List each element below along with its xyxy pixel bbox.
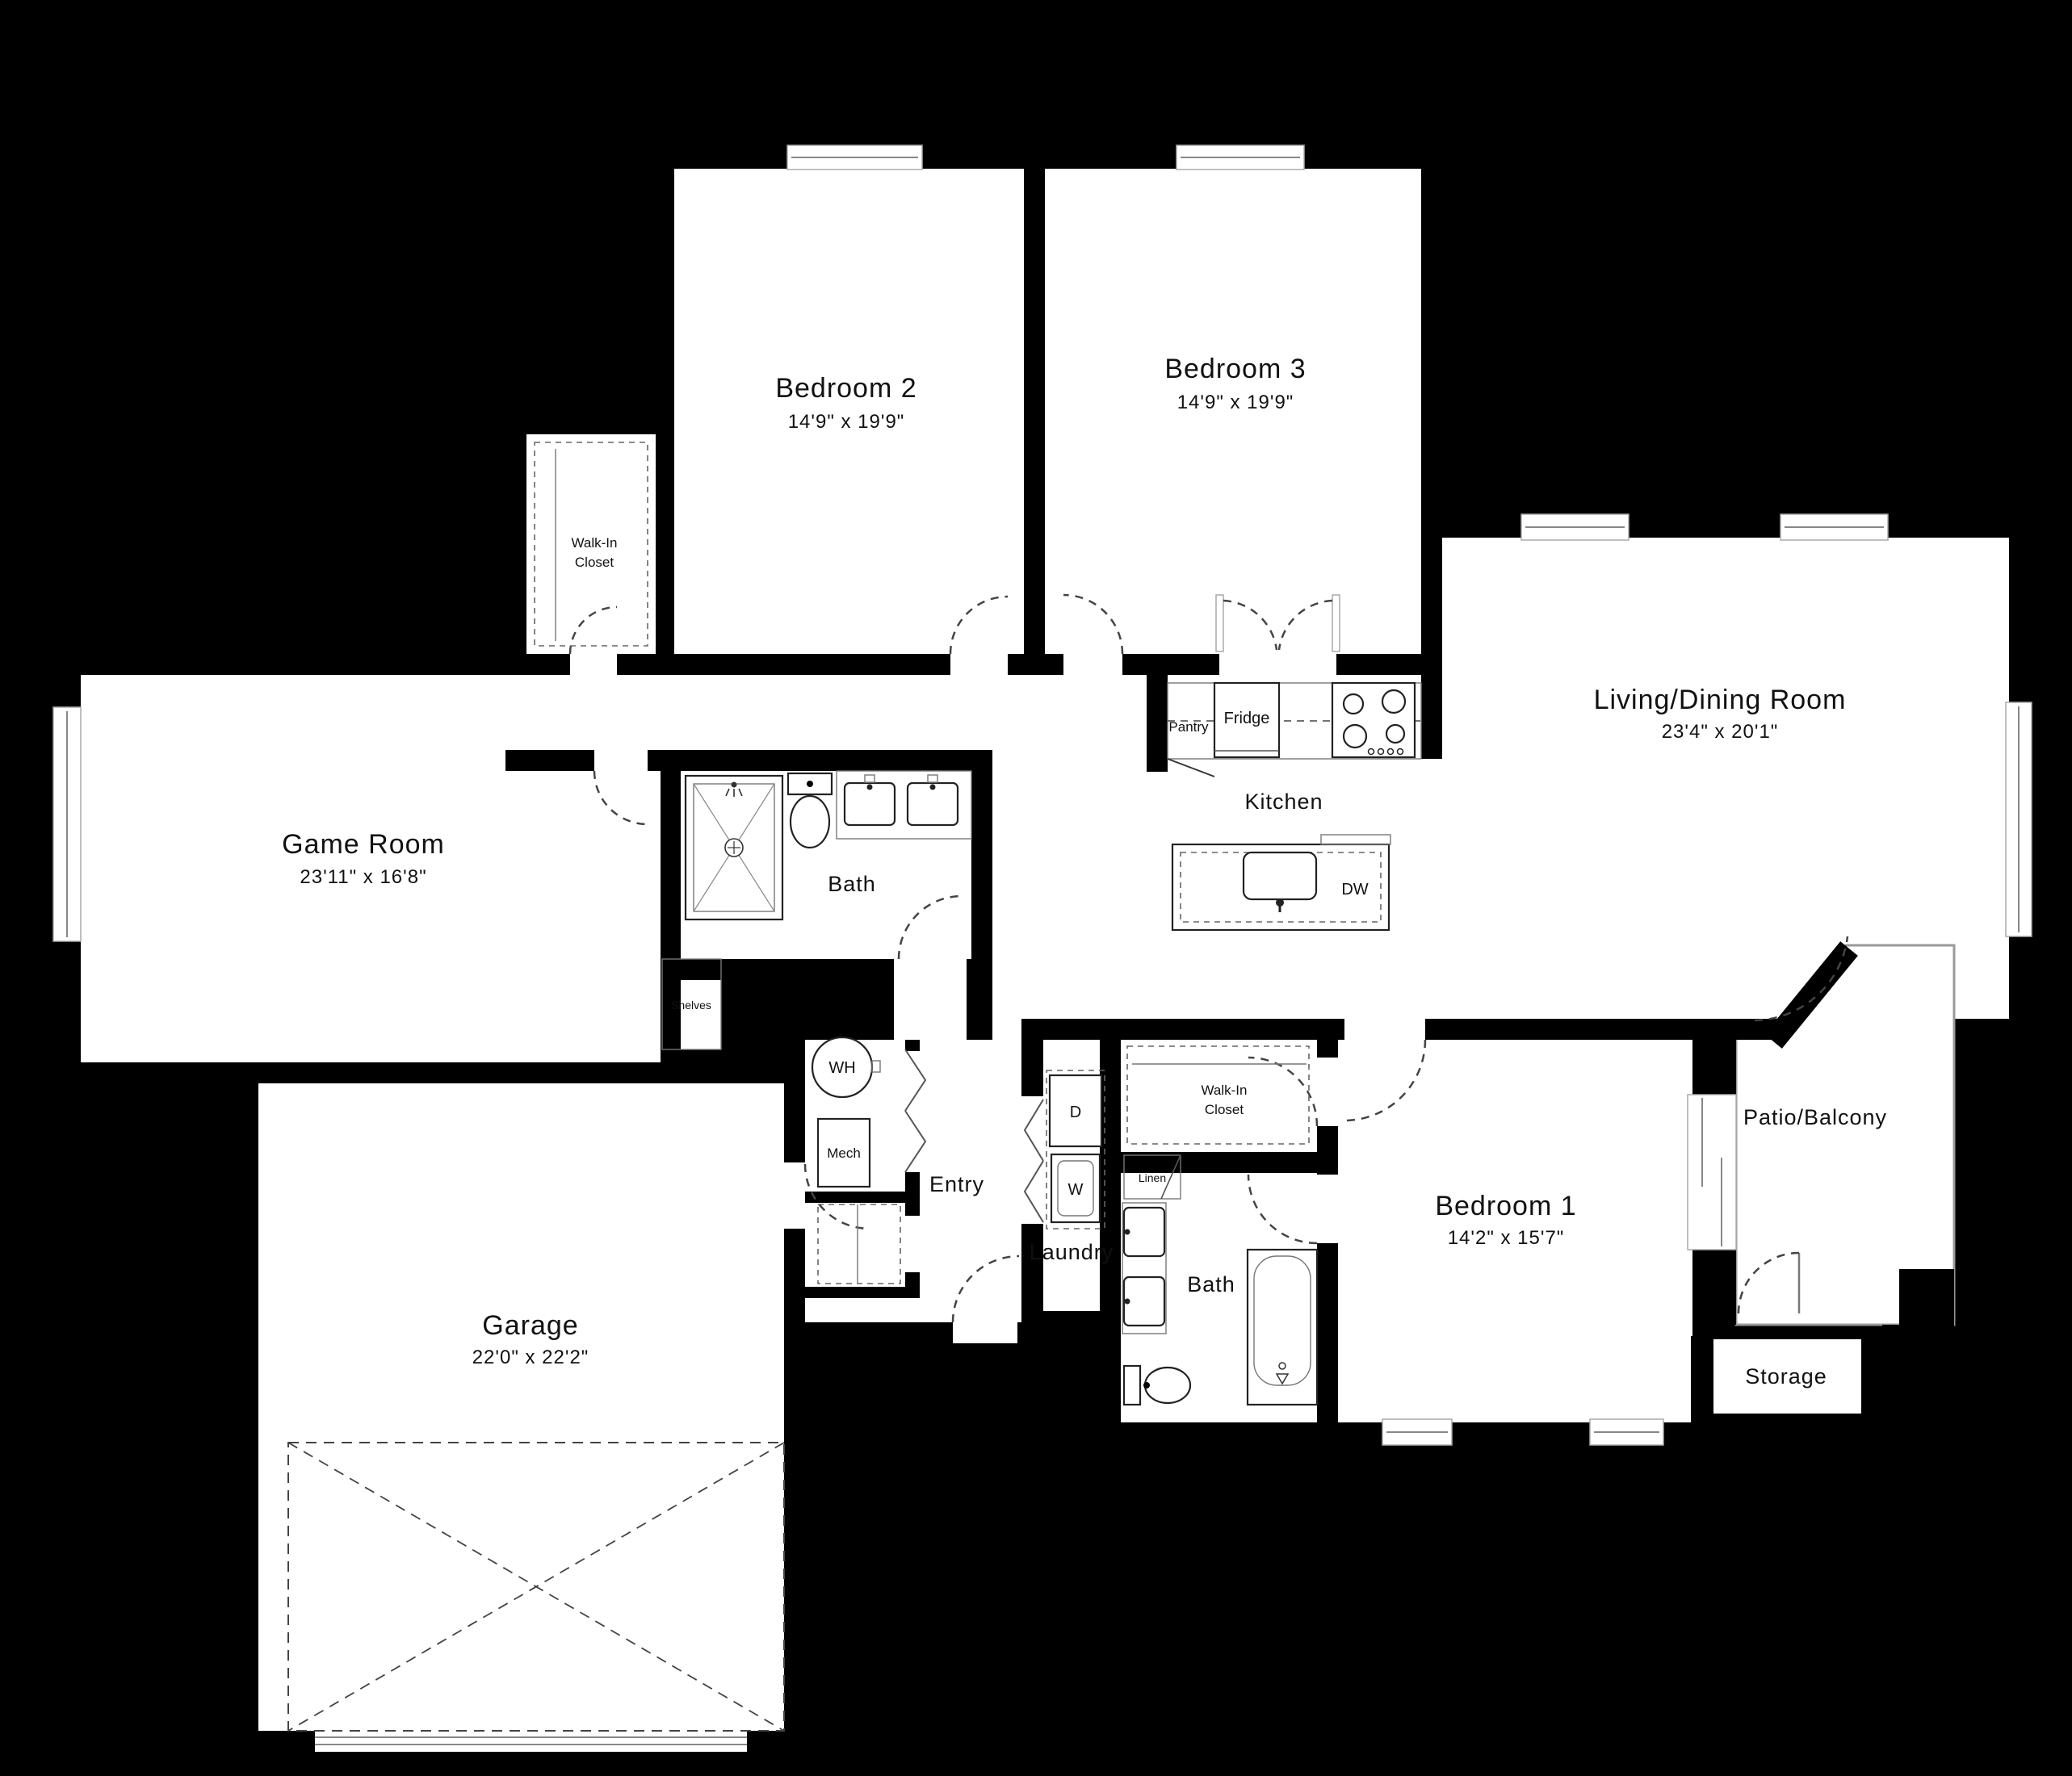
game-room-window — [53, 707, 81, 941]
bedroom1-window-2 — [1590, 1419, 1663, 1445]
toilet-lower — [1124, 1366, 1190, 1405]
fridge-label: Fridge — [1224, 710, 1270, 727]
bedroom3-dims: 14'9" x 19'9" — [1177, 392, 1294, 413]
living-window-right — [2006, 702, 2032, 936]
pantry-label: Pantry — [1168, 719, 1209, 735]
kitchen-label: Kitchen — [1244, 790, 1323, 814]
bathtub — [1248, 1250, 1317, 1405]
bedroom1-window-1 — [1382, 1419, 1452, 1445]
toilet-upper — [788, 773, 832, 848]
mech-label: Mech — [827, 1146, 861, 1161]
dryer-label: D — [1070, 1104, 1081, 1121]
walk-in-closet-right-line1: Walk-In — [1202, 1083, 1248, 1098]
dishwasher-label: DW — [1341, 881, 1368, 898]
shelves-label: Shelves — [671, 999, 711, 1012]
walk-in-closet-right-line2: Closet — [1205, 1102, 1244, 1117]
storage-label: Storage — [1745, 1364, 1827, 1389]
garage-dims: 22'0" x 22'2" — [472, 1347, 589, 1368]
floor-plan-page: Bedroom 2 14'9" x 19'9" Bedroom 3 14'9" … — [0, 0, 2072, 1776]
bath-upper-label: Bath — [828, 872, 876, 896]
linen-label: Linen — [1139, 1171, 1166, 1184]
bedroom2-window — [787, 145, 922, 170]
patio-label: Patio/Balcony — [1743, 1105, 1887, 1129]
living-dining-dims: 23'4" x 20'1" — [1662, 721, 1779, 743]
bath-lower-label: Bath — [1187, 1272, 1235, 1296]
bedroom1-dims: 14'2" x 15'7" — [1448, 1227, 1565, 1249]
kitchen-living-join — [1421, 759, 1442, 1019]
living-dining-label: Living/Dining Room — [1594, 685, 1847, 715]
bedroom2-dims: 14'9" x 19'9" — [788, 411, 905, 433]
shower — [686, 776, 782, 919]
bedroom3-label: Bedroom 3 — [1164, 354, 1306, 384]
stove — [1332, 683, 1415, 757]
walk-in-closet-top-line2: Closet — [575, 555, 614, 570]
floor-plan-canvas: Bedroom 2 14'9" x 19'9" Bedroom 3 14'9" … — [0, 0, 2072, 1776]
game-room-label: Game Room — [282, 829, 445, 860]
washer-label: W — [1068, 1181, 1084, 1199]
garage-label: Garage — [482, 1310, 578, 1341]
living-window-2 — [1780, 514, 1888, 540]
corridor-floor — [992, 675, 1147, 1019]
water-heater-label: WH — [828, 1059, 855, 1077]
bedroom1-label: Bedroom 1 — [1435, 1191, 1576, 1221]
garage-floor — [258, 1083, 784, 1731]
game-room-dims: 23'11" x 16'8" — [300, 866, 426, 888]
living-window-1 — [1521, 514, 1629, 540]
entry-label: Entry — [929, 1172, 984, 1196]
bedroom3-window — [1177, 145, 1304, 170]
walk-in-closet-top-line1: Walk-In — [572, 535, 618, 551]
bedroom2-label: Bedroom 2 — [775, 373, 916, 404]
laundry-label: Laundry — [1030, 1240, 1114, 1264]
bedroom1-patio-slider — [1688, 1095, 1736, 1250]
